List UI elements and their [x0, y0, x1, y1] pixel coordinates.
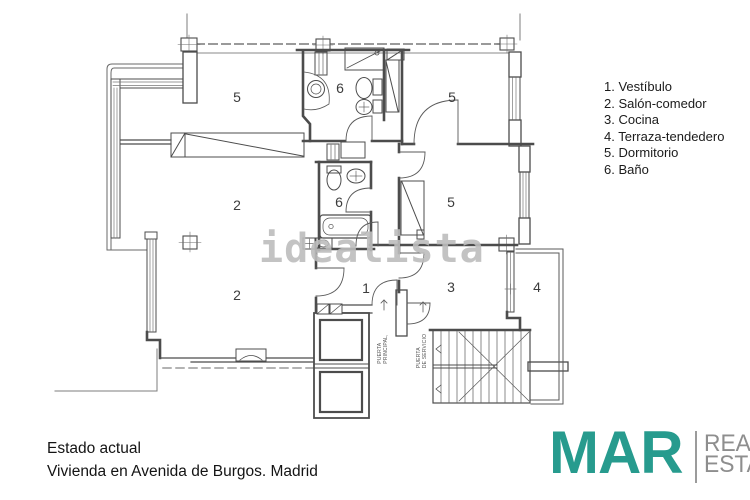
room-label-2: 2	[233, 287, 241, 303]
terrace-boundary	[516, 249, 563, 404]
room-label-4: 4	[533, 279, 541, 295]
plan-annotation: PUERTA DE SERVICIO	[391, 319, 455, 383]
legend-item: 4. Terraza-tendedero	[604, 129, 724, 146]
legend-item: 2. Salón-comedor	[604, 96, 724, 113]
room-label-3: 3	[447, 279, 455, 295]
plan-status-title: Estado actual	[47, 437, 318, 460]
room-label-5: 5	[447, 194, 455, 210]
listing-image: idealista 1. Vestíbulo2. Salón-comedor3.…	[0, 0, 750, 500]
radiator	[236, 349, 266, 361]
doors	[316, 100, 458, 324]
legend-item: 6. Baño	[604, 162, 724, 179]
plan-address-subtitle: Vivienda en Avenida de Burgos. Madrid	[47, 460, 318, 483]
logo-tagline: REAL ESTATE	[704, 433, 750, 475]
logo-divider	[695, 431, 697, 483]
footer: Estado actual Vivienda en Avenida de Bur…	[47, 437, 318, 483]
room-label-5: 5	[448, 89, 456, 105]
room-label-5: 5	[233, 89, 241, 105]
room-label-2: 2	[233, 197, 241, 213]
room-label-6: 6	[336, 80, 344, 96]
logo-wordmark: MAR	[549, 424, 695, 482]
wardrobes	[171, 49, 424, 239]
logo-tagline-line2: ESTATE	[704, 454, 750, 475]
sink-icon	[308, 81, 325, 98]
legend: 1. Vestíbulo2. Salón-comedor3. Cocina4. …	[604, 79, 724, 179]
legend-item: 5. Dormitorio	[604, 145, 724, 162]
room-label-6: 6	[335, 194, 343, 210]
idealista-watermark: idealista	[259, 226, 485, 272]
legend-item: 1. Vestíbulo	[604, 79, 724, 96]
toilet-icon	[356, 78, 372, 99]
agency-logo: MAR REAL ESTATE	[549, 424, 750, 483]
legend-item: 3. Cocina	[604, 112, 724, 129]
room-label-1: 1	[362, 280, 370, 296]
